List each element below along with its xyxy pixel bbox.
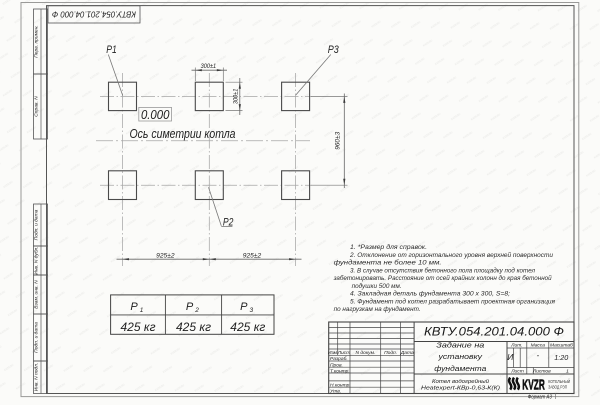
svg-text:1: 1 — [140, 307, 144, 314]
svg-text:Подп. и дата: Подп. и дата — [34, 209, 40, 240]
svg-text:Инв. N дубл.: Инв. N дубл. — [34, 246, 40, 274]
svg-text:Дата: Дата — [400, 350, 414, 356]
svg-text:ЗАВОД РЭП: ЗАВОД РЭП — [548, 385, 567, 390]
svg-text:И: И — [507, 352, 514, 362]
svg-text:3: 3 — [249, 307, 253, 314]
svg-text:КВТУ.054.201.04.000 Ф: КВТУ.054.201.04.000 Ф — [52, 10, 136, 20]
svg-text:Р: Р — [130, 301, 138, 313]
svg-text:Масса: Масса — [531, 343, 546, 349]
svg-text:Разраб.: Разраб. — [330, 356, 348, 362]
svg-text:Р1: Р1 — [106, 44, 117, 56]
svg-text:Масштаб: Масштаб — [550, 343, 573, 349]
svg-text:Листов: Листов — [532, 369, 551, 375]
svg-text:Утв.: Утв. — [330, 389, 341, 395]
svg-text:КОТЕЛЬНЫЙ: КОТЕЛЬНЫЙ — [548, 379, 570, 384]
svg-text:Лист: Лист — [510, 369, 524, 375]
svg-text:5. Фундамент под котел разраба: 5. Фундамент под котел разрабатывает про… — [350, 298, 556, 305]
svg-text:960±3: 960±3 — [334, 131, 341, 149]
svg-text:425 кг: 425 кг — [121, 322, 156, 334]
svg-text:300±1: 300±1 — [233, 89, 240, 105]
svg-text:925±2: 925±2 — [243, 252, 262, 259]
svg-text:установку: установку — [437, 352, 483, 361]
svg-text:KVZR: KVZR — [522, 376, 545, 393]
svg-text:Справ. N: Справ. N — [34, 96, 40, 117]
svg-text:N докум.: N докум. — [356, 350, 376, 356]
svg-text:1: 1 — [566, 369, 569, 375]
svg-text:Р: Р — [186, 301, 194, 313]
svg-text:забетонировать. Расстояние от: забетонировать. Расстояние от осей крайн… — [333, 275, 553, 282]
svg-text:Подп.: Подп. — [384, 350, 397, 356]
svg-text:2. Отклонение от горизонтально: 2. Отклонение от горизонтального уровня … — [349, 252, 554, 259]
svg-text:Т.контр.: Т.контр. — [330, 368, 350, 374]
svg-text:Лист: Лист — [337, 350, 351, 356]
svg-text:Инв. N подл.: Инв. N подл. — [34, 363, 40, 392]
svg-text:300±1: 300±1 — [201, 63, 217, 70]
svg-text:1:20: 1:20 — [554, 353, 569, 362]
svg-text:425 кг: 425 кг — [230, 322, 265, 334]
svg-text:Задание на: Задание на — [436, 340, 484, 349]
svg-text:0.000: 0.000 — [141, 107, 170, 122]
svg-text:Ось симетрии котла: Ось симетрии котла — [130, 127, 236, 141]
svg-text:фундамента: фундамента — [434, 364, 486, 373]
svg-text:Р3: Р3 — [328, 44, 340, 56]
svg-text:4. Закладная деталь фундамента: 4. Закладная деталь фундамента 300 х 300… — [350, 291, 510, 298]
svg-text:КВТУ.054.201.04.000 Ф: КВТУ.054.201.04.000 Ф — [424, 324, 564, 338]
svg-text:Формат А3: Формат А3 — [528, 394, 552, 400]
svg-text:2: 2 — [194, 307, 199, 314]
svg-text:3. В случае отсутствия бетонно: 3. В случае отсутствия бетонного пола пл… — [350, 267, 536, 274]
svg-text:по нагрузкам на фундамент.: по нагрузкам на фундамент. — [334, 306, 421, 313]
svg-text:Котел водогрейный: Котел водогрейный — [432, 378, 490, 385]
svg-text:Взам. инв. N: Взам. инв. N — [34, 280, 40, 309]
svg-text:425 кг: 425 кг — [176, 322, 211, 334]
svg-text:фундамента не более 10 мм.: фундамента не более 10 мм. — [334, 260, 442, 267]
svg-text:подушки 500 мм.: подушки 500 мм. — [352, 283, 402, 290]
svg-text:925±2: 925±2 — [156, 252, 175, 259]
svg-text:Пров.: Пров. — [330, 362, 343, 368]
svg-text:Подп. и дата: Подп. и дата — [34, 322, 40, 353]
svg-text:Р: Р — [240, 301, 248, 313]
svg-text:Н.контр.: Н.контр. — [330, 382, 351, 388]
svg-text:1. *Размер для справок.: 1. *Размер для справок. — [350, 244, 427, 251]
svg-text:-: - — [536, 351, 539, 360]
svg-text:Лит.: Лит. — [510, 343, 522, 349]
svg-text:Перв. примен.: Перв. примен. — [34, 25, 40, 58]
svg-text:Heatexpert-КВр-0,63-К(К): Heatexpert-КВр-0,63-К(К) — [421, 386, 500, 392]
